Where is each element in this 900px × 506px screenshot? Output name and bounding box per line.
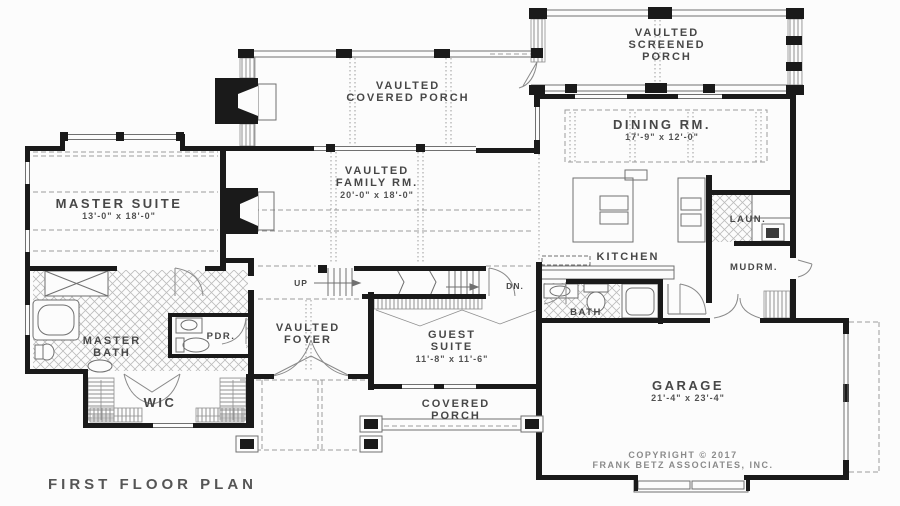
room-label-master-suite: MASTER SUITE 13'-0" x 18'-0" [56,198,183,222]
room-label-kitchen: KITCHEN [597,251,660,263]
fireplace-openings [238,86,258,226]
floor-plan: VAULTED SCREENED PORCH VAULTED COVERED P… [0,0,900,506]
room-label-laundry: LAUN. [730,214,767,226]
stair-label-up: UP [294,277,308,289]
stairs [314,268,479,296]
room-label-mudroom: MUDRM. [730,262,778,274]
room-label-family: VAULTED FAMILY RM. 20'-0" x 18'-0" [336,165,418,201]
room-label-wic: WIC [144,397,177,409]
room-label-screened-porch: VAULTED SCREENED PORCH [628,27,705,63]
room-label-covered-porch-top: VAULTED COVERED PORCH [346,80,469,104]
room-label-foyer: VAULTED FOYER [276,322,340,346]
plan-title: FIRST FLOOR PLAN [48,479,257,491]
room-label-dining: DINING RM. 17'-9" x 12'-0" [613,119,711,143]
room-label-powder: PDR. [207,331,236,343]
room-label-guest-suite: GUEST SUITE 11'-8" x 11'-6" [416,329,489,365]
room-label-garage: GARAGE 21'-4" x 23'-4" [651,380,725,404]
copyright-notice: COPYRIGHT © 2017 FRANK BETZ ASSOCIATES, … [592,450,773,470]
room-label-bath: BATH [570,307,602,319]
stair-label-down: DN. [506,280,524,292]
floor-plan-drawing [0,0,900,506]
room-label-master-bath: MASTER BATH [83,335,141,359]
room-label-covered-porch-bottom: COVERED PORCH [422,398,490,422]
